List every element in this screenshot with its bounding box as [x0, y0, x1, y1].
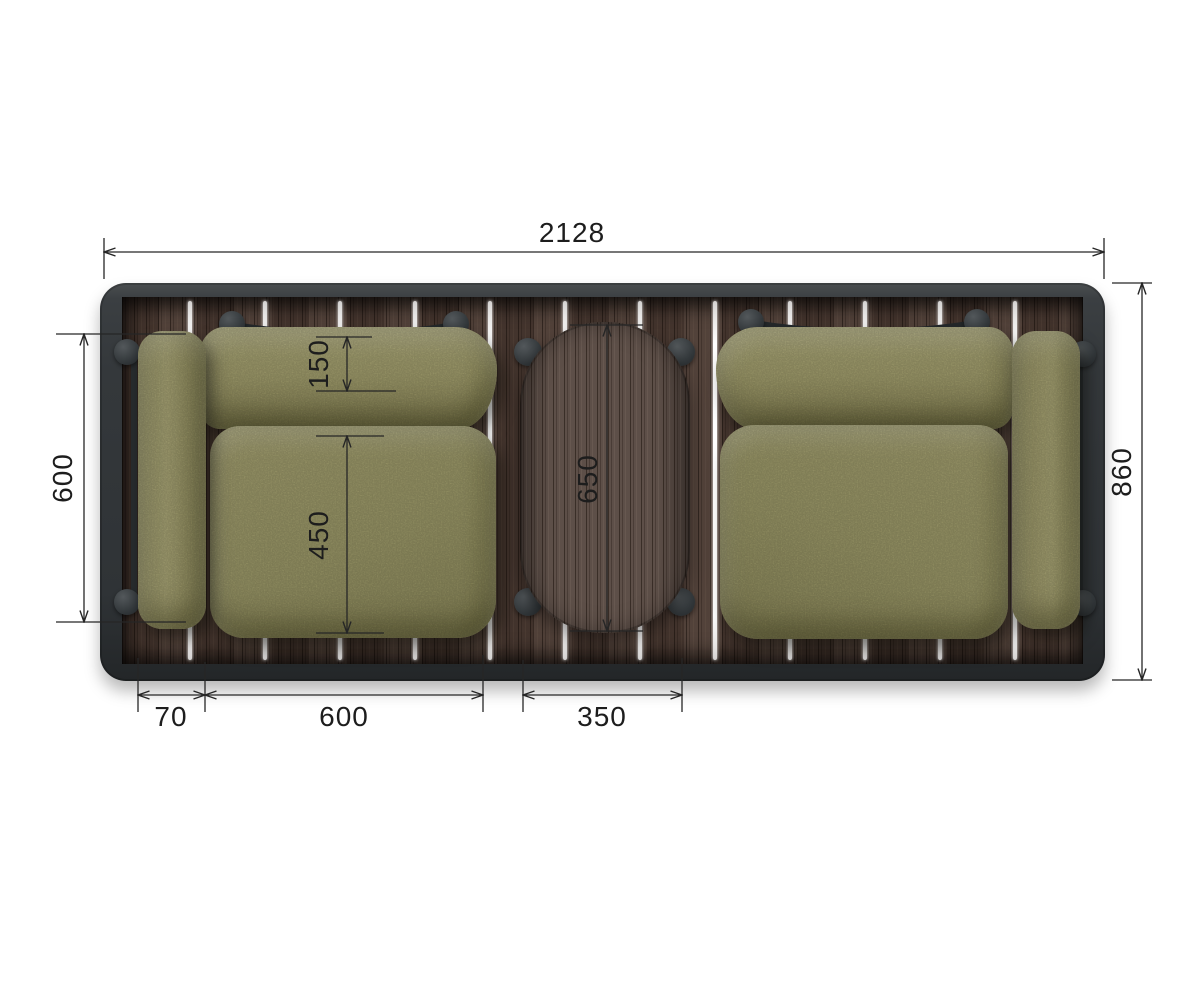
left-armchair-seat-cushion	[210, 426, 496, 638]
fabric-texture	[716, 327, 1014, 429]
right-armchair-armrest-cushion	[1012, 331, 1080, 629]
dim-label-backrest-depth: 150	[303, 339, 335, 389]
fabric-texture	[199, 327, 497, 429]
dim-label-table-length: 650	[572, 454, 604, 504]
dim-label-chair-outer-depth: 600	[47, 453, 79, 503]
drawing-canvas: 2128 860 600 150 450 650 70 600 350	[0, 0, 1200, 1000]
dim-label-seat-width: 600	[319, 701, 369, 733]
dim-label-armrest-width: 70	[154, 701, 187, 733]
left-armchair-armrest-cushion	[138, 331, 206, 629]
left-armchair-backrest-cushion	[199, 327, 497, 429]
right-armchair-seat-cushion	[720, 425, 1008, 639]
frame-joint-knob	[114, 589, 140, 615]
fabric-texture	[1012, 331, 1080, 629]
fabric-texture	[210, 426, 496, 638]
fabric-texture	[138, 331, 206, 629]
chair-frame-tube	[131, 348, 137, 608]
dim-label-overall-depth: 860	[1106, 447, 1138, 497]
coffee-table	[520, 322, 690, 633]
dim-label-overall-width: 2128	[539, 217, 605, 249]
dim-label-table-width: 350	[577, 701, 627, 733]
dim-label-seat-depth: 450	[303, 510, 335, 560]
frame-joint-knob	[114, 339, 140, 365]
fabric-texture	[720, 425, 1008, 639]
right-armchair-backrest-cushion	[716, 327, 1014, 429]
